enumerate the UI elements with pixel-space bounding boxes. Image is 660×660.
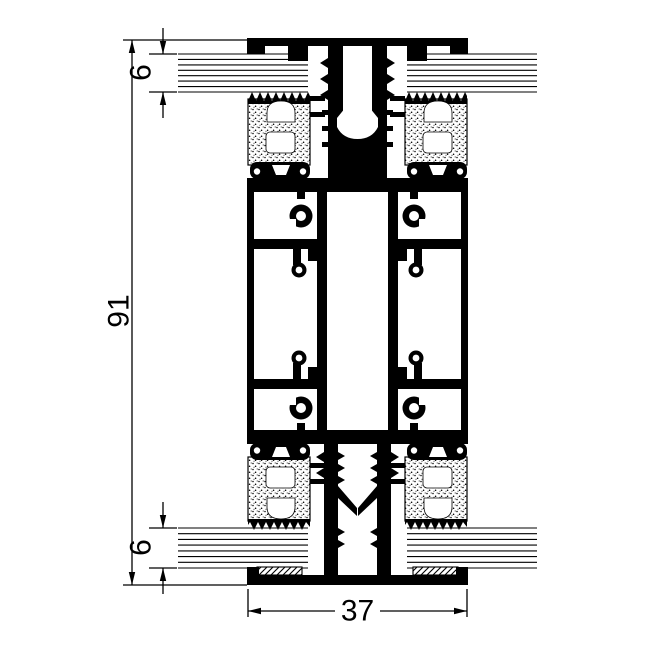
technical-drawing-canvas: 91 6 6 37 [0, 0, 660, 660]
dim-label-glass-bottom: 6 [125, 539, 158, 556]
gasket-cavity-dome [424, 498, 452, 519]
arrowhead-down [129, 572, 135, 585]
glass-pane-bottom-right [407, 528, 537, 568]
cap-plate [247, 575, 468, 585]
cap-plate [247, 38, 468, 46]
foam-gasket-bottom-right [405, 443, 467, 530]
dim-label-glass-top: 6 [125, 64, 158, 81]
arrowhead-up [129, 40, 135, 53]
arrowhead-up [160, 92, 166, 105]
central-chamber [327, 192, 388, 430]
foam-gasket-top-left [248, 92, 310, 179]
cap-end-tab-left [247, 46, 265, 54]
screw-channel-bottom [316, 444, 399, 575]
funnel-fins [338, 486, 377, 516]
cap-end-tab-left [247, 567, 259, 575]
dim-label-width: 37 [341, 595, 374, 628]
setting-block-right [413, 567, 458, 575]
arrowhead-up [160, 568, 166, 581]
mid-left-chamber [254, 249, 317, 379]
cap-end-tab-right [450, 46, 468, 54]
arrowhead-down [160, 41, 166, 54]
arrowhead-down [160, 515, 166, 528]
setting-block-left [257, 567, 302, 575]
cap-glass-lip-left [288, 46, 308, 61]
foam-gasket-bottom-left [248, 443, 310, 530]
gasket-cavity-rect [423, 467, 452, 488]
mid-right-chamber [398, 249, 461, 379]
screw-channel-top [320, 46, 395, 178]
foam-gasket-top-right [405, 92, 467, 179]
profile-section-drawing: 91 6 6 37 [0, 0, 660, 660]
arrowhead-right [454, 608, 467, 614]
gasket-cavity-rect [266, 467, 295, 488]
glass-pane-bottom-left [178, 528, 308, 568]
gasket-cavity-dome [267, 101, 295, 122]
arrowhead-left [248, 608, 261, 614]
gasket-cavity-dome [267, 498, 295, 519]
cap-glass-lip-right [407, 46, 427, 61]
mullion-body [247, 178, 468, 444]
screw-slot [337, 47, 378, 139]
gasket-cavity-rect [423, 132, 452, 153]
dim-label-height: 91 [103, 294, 136, 327]
gasket-cavity-rect [266, 132, 295, 153]
cap-end-tab-right [456, 567, 468, 575]
dimension-cap-width: 37 [248, 589, 467, 628]
dimension-overall-height: 91 [103, 40, 248, 585]
gasket-cavity-dome [424, 101, 452, 122]
